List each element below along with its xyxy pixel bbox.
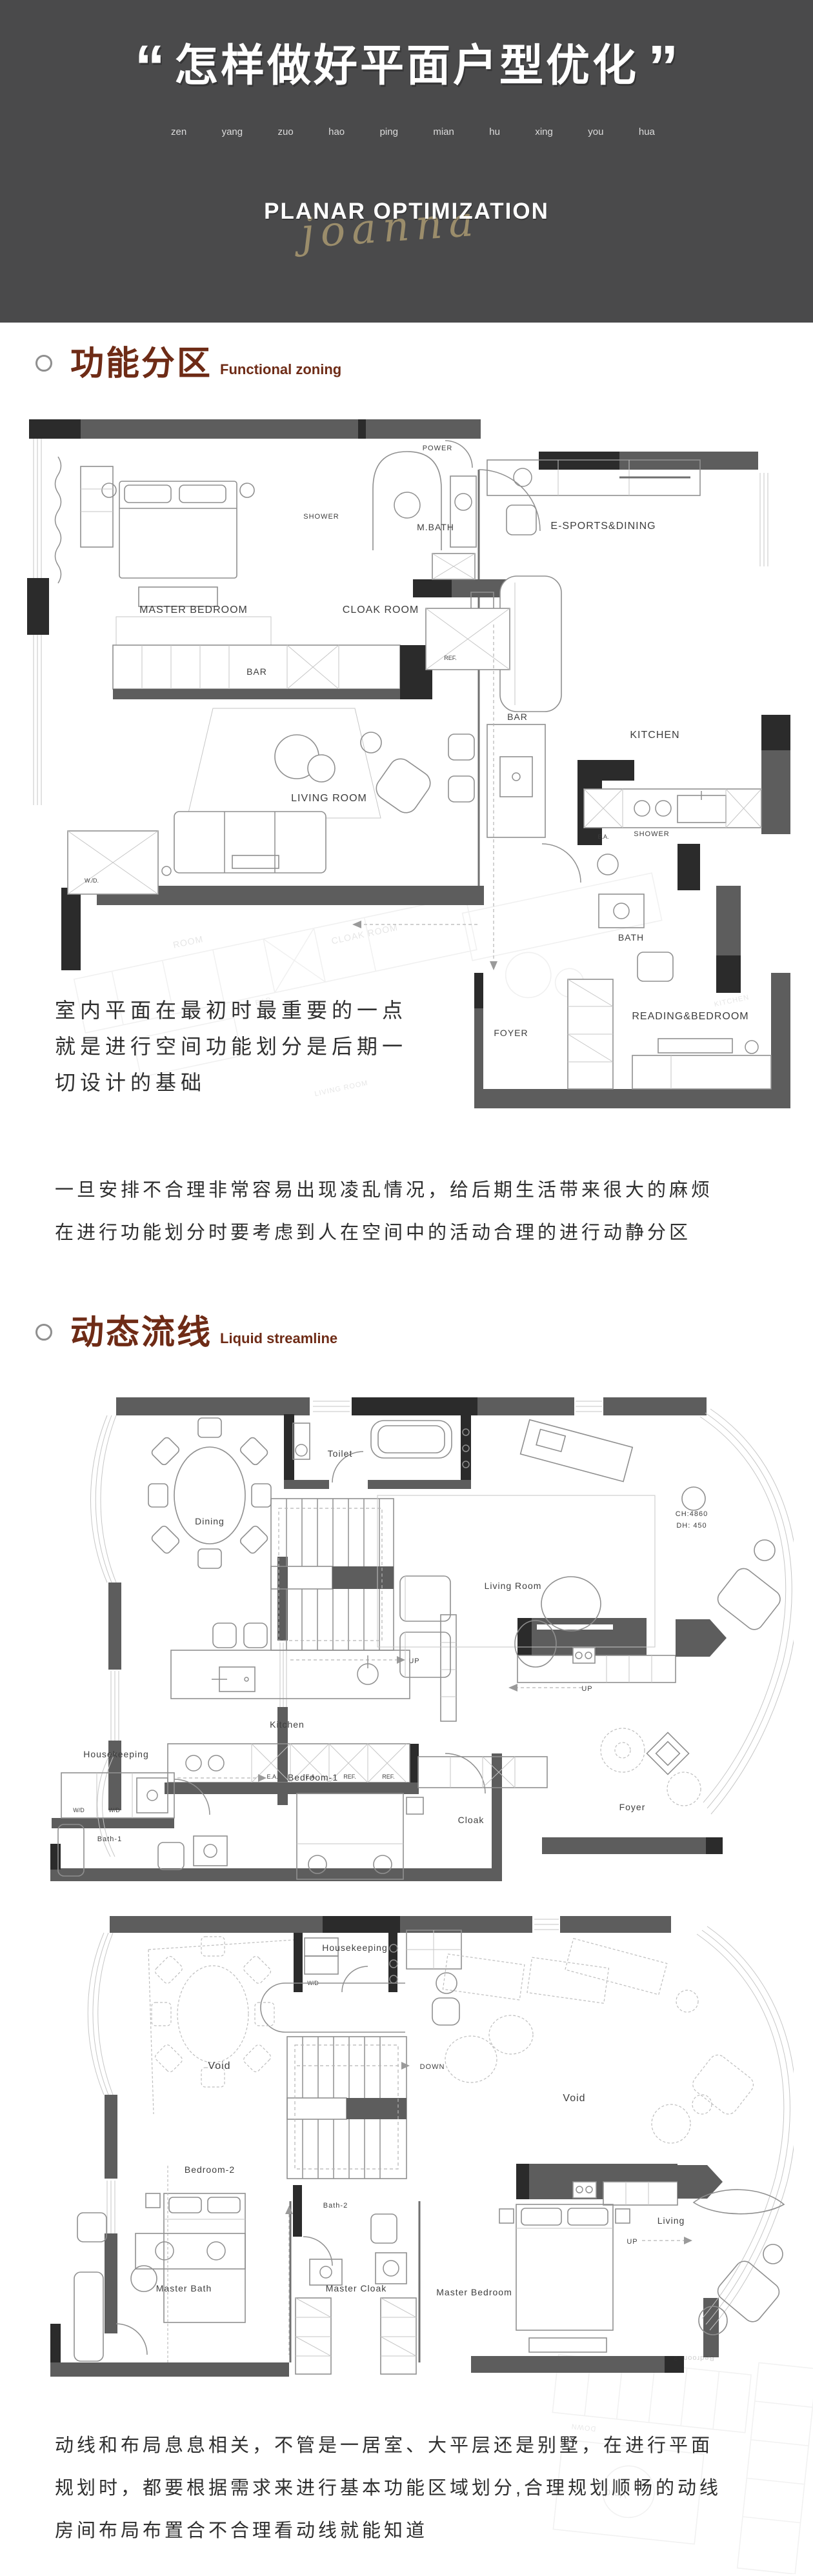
room-label-dining: Dining: [195, 1516, 225, 1526]
plan2-living-room: Living Room CH:4860 DH: 450: [377, 1420, 784, 1806]
ghost-label: CLOAK ROOM: [330, 922, 399, 946]
ghost-label-bedroom2: Bedroom-2: [673, 2354, 714, 2362]
plan2-bedroom1: Bedroom-1: [288, 1753, 485, 1879]
plan1-kitchen: KITCHEN E.A.: [584, 730, 761, 840]
room-label-cloak-room: CLOAK ROOM: [343, 604, 419, 615]
section-bullet-icon: [35, 1324, 52, 1341]
room-label-foyer: FOYER: [494, 1028, 528, 1038]
room-label-housekeeping-2: Housekeeping: [322, 1942, 388, 1953]
plan1-fridge-cell: REF.: [426, 608, 510, 670]
paragraph-2: 一旦安排不合理非常容易出现凌乱情况，给后期生活带来很大的麻烦 在进行功能划分时要…: [55, 1169, 713, 1254]
room-label-cloak: Cloak: [458, 1815, 485, 1825]
room-label-housekeeping: Housekeeping: [83, 1749, 149, 1759]
room-label-living: Living: [657, 2215, 685, 2226]
room-label-kitchen-2: Kitchen: [270, 1719, 305, 1730]
plan2-toilet: Toilet: [284, 1414, 471, 1489]
pinyin-syllable: hao: [328, 126, 345, 137]
appliance-label-wd: W/D: [73, 1807, 85, 1813]
paragraph-line: 一旦安排不合理非常容易出现凌乱情况，给后期生活带来很大的麻烦: [55, 1169, 713, 1212]
plan2-kitchen: Kitchen E.A. E.A. REF. REF.: [165, 1623, 419, 1794]
room-label-master-bath: Master Bath: [156, 2283, 212, 2293]
stairs-up-label: UP: [408, 1657, 419, 1665]
room-label-master-bedroom-2: Master Bedroom: [436, 2287, 512, 2297]
section-header-functional-zoning: 功能分区 Functional zoning: [35, 347, 341, 381]
pinyin-syllable: zen: [171, 126, 186, 137]
room-label-esports-dining: E-SPORTS&DINING: [550, 521, 656, 532]
plan2-dining: Dining: [148, 1418, 271, 1568]
pinyin-syllable: ping: [380, 126, 398, 137]
open-quote-icon: “: [134, 40, 165, 95]
plan1-living-room: LIVING ROOM: [174, 708, 435, 873]
section-title-en: Functional zoning: [220, 361, 341, 378]
room-label-bath2: Bath-2: [323, 2202, 348, 2210]
room-label-foyer-2: Foyer: [619, 1802, 646, 1812]
room-label-m-bath: M.BATH: [417, 522, 454, 532]
page-title: 怎样做好平面户型优化: [174, 40, 639, 93]
steps-up-label-2: UP: [627, 2238, 637, 2246]
plan1-laundry: W./D.: [68, 831, 171, 894]
pinyin-syllable: you: [588, 126, 603, 137]
cabinet-label-ea: E.A.: [266, 1773, 277, 1780]
plan3-living: Living Bedroom-2: [657, 2190, 784, 2362]
room-label-wd: W./D.: [85, 877, 99, 884]
room-label-bar: BAR: [246, 666, 267, 677]
plan1-guest-bath: SHOWER BATH: [542, 830, 673, 981]
pinyin-syllable: yang: [222, 126, 243, 137]
section-title-en: Liquid streamline: [220, 1330, 337, 1347]
paragraph-line: 动线和布局息息相关，不管是一居室、大平层还是别墅，在进行平面: [55, 2424, 721, 2467]
plan3-walls: [50, 1916, 719, 2377]
floor-plan-streamline-level1: Toilet UP: [19, 1392, 794, 1886]
paragraph-line: 在进行功能划分时要考虑到人在空间中的活动合理的进行动静分区: [55, 1212, 713, 1254]
plan3-stairs: DOWN: [287, 2037, 445, 2179]
room-label-void-1: Void: [208, 2061, 230, 2072]
annotation-dh: DH: 450: [676, 1522, 707, 1530]
room-label-living-room: LIVING ROOM: [291, 793, 367, 804]
ghost-label: ROOM: [172, 934, 205, 950]
section-bullet-icon: [35, 355, 52, 372]
room-label-toilet: Toilet: [328, 1448, 353, 1459]
plan2-tv-wall: [517, 1618, 727, 1682]
plan3-bath2: Bath-2: [303, 2202, 406, 2285]
plan3-master-cloak: Master Cloak: [296, 2283, 416, 2374]
plan3-bedroom2: Bedroom-2: [131, 2164, 245, 2362]
pinyin-syllable: hua: [639, 126, 655, 137]
room-label-ref: REF.: [444, 655, 457, 661]
room-label-master-bedroom: MASTER BEDROOM: [139, 604, 248, 615]
plan1-bar-counter: BAR: [113, 645, 432, 699]
plan1-side-bar: BAR: [448, 712, 545, 837]
paragraph-1: 室内平面在最初时最重要的一点 就是进行空间功能划分是后期一 切设计的基础: [55, 992, 407, 1101]
plan3-master-bedroom: Master Bedroom UP: [436, 2204, 692, 2352]
room-label-bedroom2: Bedroom-2: [185, 2164, 235, 2175]
annotation-ch: CH:4860: [676, 1510, 708, 1518]
room-label-living-room-2: Living Room: [485, 1581, 542, 1591]
poster-page: “ 怎样做好平面户型优化 ” zen yang zuo hao ping mia…: [0, 0, 813, 2576]
floor-plan-streamline-level2: Housekeeping W/D DOWN: [19, 1911, 794, 2388]
pinyin-syllable: xing: [535, 126, 553, 137]
room-label-master-cloak: Master Cloak: [326, 2283, 386, 2293]
plan1-reading-bedroom: FOYER READING&BEDROOM: [494, 979, 771, 1089]
appliance-label-wd: W/D: [108, 1807, 120, 1813]
room-label-shower-2: SHOWER: [634, 830, 670, 838]
stairs-down-label: DOWN: [420, 2063, 445, 2071]
section-title-cn: 动态流线: [70, 1316, 212, 1350]
room-label-bedroom1: Bedroom-1: [288, 1772, 338, 1782]
paragraph-line: 就是进行空间功能划分是后期一: [55, 1028, 407, 1064]
room-label-bath1: Bath-1: [97, 1835, 122, 1843]
page-title-row: “ 怎样做好平面户型优化 ”: [0, 40, 813, 95]
paragraph-line: 房间布局布置合不合理看动线就能知道: [55, 2510, 721, 2552]
ghost-label: KITCHEN: [714, 993, 750, 1008]
paragraph-line: 切设计的基础: [55, 1064, 407, 1101]
plan3-kitchenette: [516, 2164, 723, 2205]
header-subtitle: PLANAR OPTIMIZATION: [0, 199, 813, 225]
steps-up-label: UP: [581, 1685, 592, 1693]
cabinet-label-ref: REF.: [382, 1773, 395, 1780]
plan3-bay-windows: [88, 1926, 794, 2330]
close-quote-icon: ”: [648, 40, 679, 95]
pinyin-syllable: mian: [433, 126, 454, 137]
room-label-reading-bedroom: READING&BEDROOM: [632, 1011, 748, 1022]
room-label-bar-2: BAR: [507, 712, 528, 722]
room-label-kitchen: KITCHEN: [630, 730, 679, 741]
cabinet-label-ref: REF.: [343, 1773, 356, 1780]
room-label-void-2: Void: [563, 2093, 585, 2104]
room-label-ea: E.A.: [597, 834, 608, 840]
section-header-liquid-streamline: 动态流线 Liquid streamline: [35, 1316, 337, 1350]
plan2-stairs: UP: [271, 1499, 420, 1665]
room-label-power: POWER: [423, 444, 453, 452]
plan3-void-living: Void: [443, 1939, 757, 2143]
pinyin-syllable: zuo: [278, 126, 294, 137]
header-banner: “ 怎样做好平面户型优化 ” zen yang zuo hao ping mia…: [0, 0, 813, 323]
plan1-esports-dining: E-SPORTS&DINING: [471, 460, 700, 712]
paragraph-line: 室内平面在最初时最重要的一点: [55, 992, 407, 1028]
paragraph-line: 规划时，都要根据需求来进行基本功能区域划分,合理规划顺畅的动线: [55, 2467, 721, 2510]
room-label-shower: SHOWER: [303, 513, 339, 521]
room-label-bath: BATH: [618, 932, 644, 943]
pinyin-row: zen yang zuo hao ping mian hu xing you h…: [171, 126, 655, 137]
plan1-master-bedroom: MASTER BEDROOM: [81, 466, 271, 672]
pinyin-syllable: hu: [489, 126, 500, 137]
plan3-void-dining: Void: [148, 1937, 294, 2114]
section-title-cn: 功能分区: [70, 347, 212, 381]
paragraph-3: 动线和布局息息相关，不管是一居室、大平层还是别墅，在进行平面 规划时，都要根据需…: [55, 2424, 721, 2552]
